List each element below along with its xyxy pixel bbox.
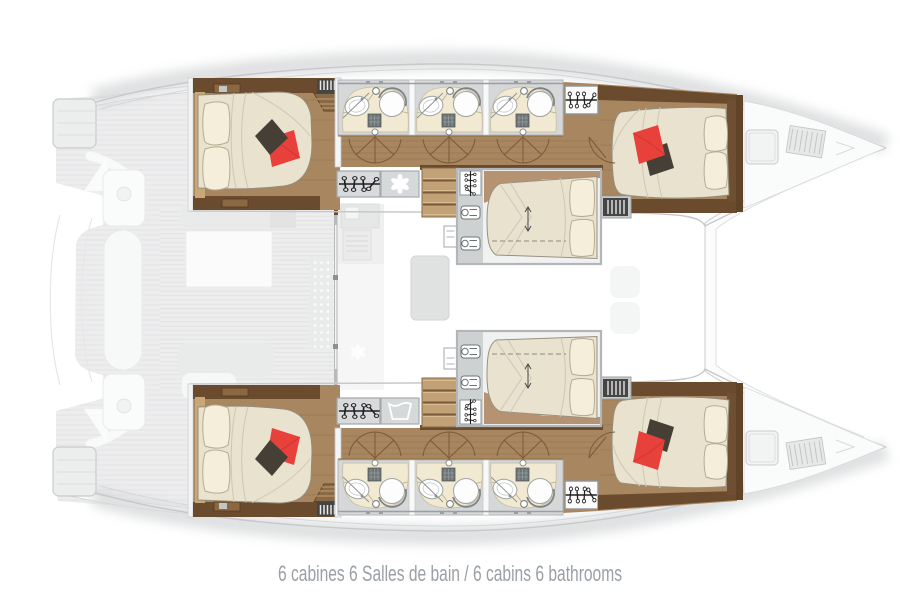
svg-text:6 cabines 6 Salles de bain / 6: 6 cabines 6 Salles de bain / 6 cabins 6 … bbox=[278, 561, 622, 586]
